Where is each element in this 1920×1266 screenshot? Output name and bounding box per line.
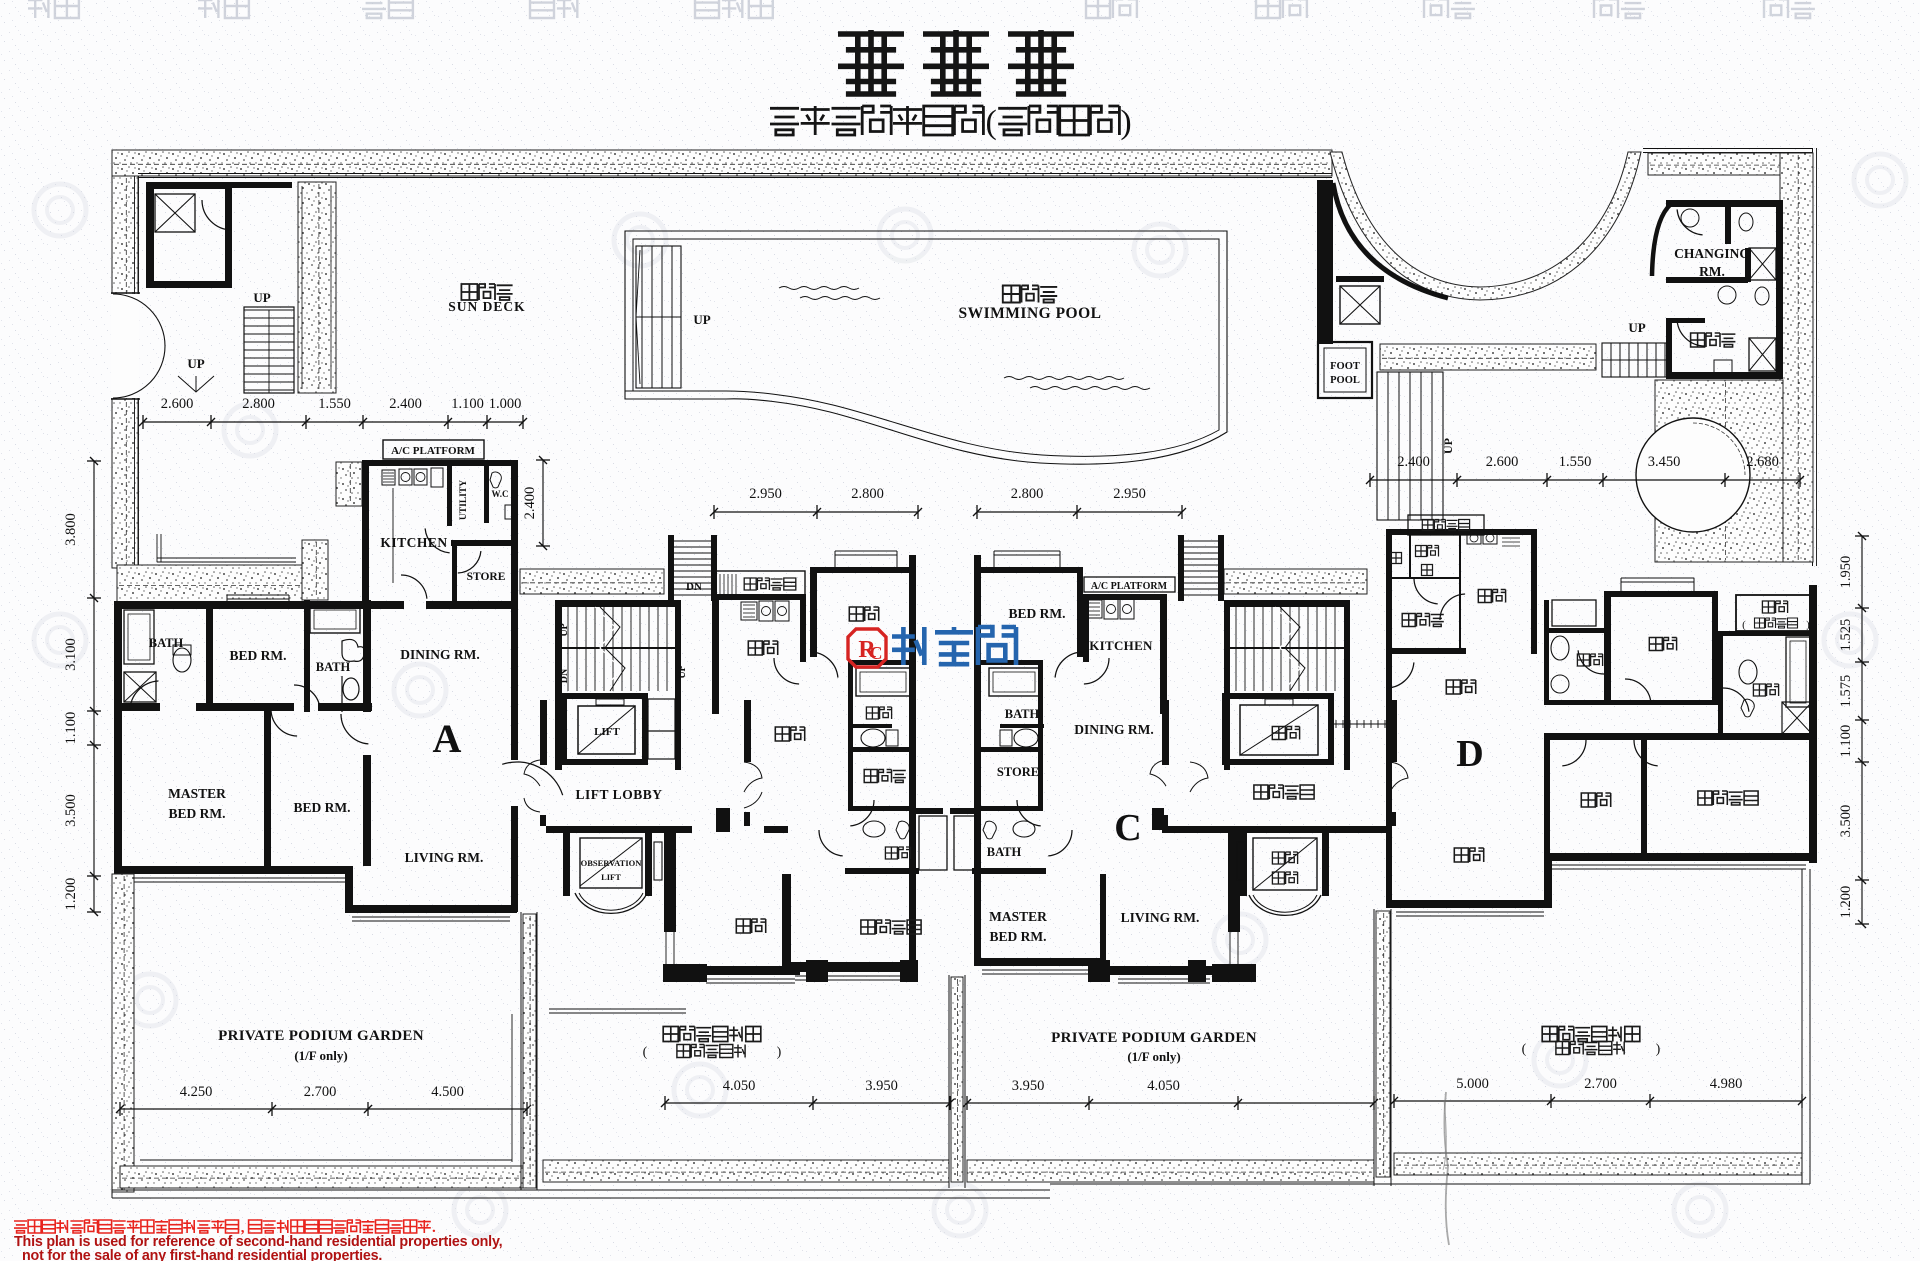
svg-text:3.500: 3.500 <box>1838 805 1854 838</box>
svg-text:A/C PLATFORM: A/C PLATFORM <box>1091 581 1168 592</box>
svg-text:UP: UP <box>1628 320 1645 335</box>
svg-text:OBSERVATION: OBSERVATION <box>581 858 643 868</box>
svg-text:RM.: RM. <box>1699 264 1725 279</box>
svg-text:4.500: 4.500 <box>431 1084 464 1100</box>
svg-text:4.050: 4.050 <box>1147 1078 1180 1094</box>
svg-text:A: A <box>433 716 462 761</box>
svg-text:2.680: 2.680 <box>1746 454 1779 470</box>
svg-text:C: C <box>870 643 883 663</box>
svg-text:LIFT: LIFT <box>594 726 620 738</box>
svg-text:2.600: 2.600 <box>1486 454 1519 470</box>
svg-text:A/C PLATFORM: A/C PLATFORM <box>391 445 475 457</box>
svg-text:BATH: BATH <box>149 636 184 650</box>
svg-text:(1/F only): (1/F only) <box>1127 1049 1180 1064</box>
svg-text:1.550: 1.550 <box>318 396 351 412</box>
svg-text:2.600: 2.600 <box>161 396 194 412</box>
svg-text:BED RM.: BED RM. <box>990 929 1047 944</box>
svg-text:3.950: 3.950 <box>1012 1078 1045 1094</box>
svg-text:(: ( <box>643 1045 648 1060</box>
svg-text:LIFT LOBBY: LIFT LOBBY <box>576 787 663 802</box>
svg-text:SUN DECK: SUN DECK <box>448 299 525 314</box>
svg-text:BATH: BATH <box>1005 707 1040 721</box>
svg-text:UP: UP <box>559 623 570 636</box>
svg-text:UTILITY: UTILITY <box>459 480 469 520</box>
svg-text:3.800: 3.800 <box>63 513 79 546</box>
svg-text:SWIMMING POOL: SWIMMING POOL <box>959 305 1102 322</box>
svg-text:DINING RM.: DINING RM. <box>1074 722 1154 737</box>
svg-text:BED RM.: BED RM. <box>294 800 351 815</box>
svg-text:UP: UP <box>187 356 204 371</box>
svg-text:1.100: 1.100 <box>451 396 484 412</box>
svg-text:2.950: 2.950 <box>1113 486 1146 502</box>
svg-text:1.000: 1.000 <box>489 396 522 412</box>
svg-text:FOOT: FOOT <box>1330 361 1360 372</box>
svg-text:1.200: 1.200 <box>63 878 79 911</box>
svg-text:DINING RM.: DINING RM. <box>400 647 480 662</box>
svg-text:2.400: 2.400 <box>389 396 422 412</box>
svg-text:DN: DN <box>559 668 570 683</box>
svg-text:(: ( <box>1742 619 1746 631</box>
svg-text:3.950: 3.950 <box>865 1078 898 1094</box>
svg-text:3.500: 3.500 <box>63 794 79 827</box>
svg-text:2.800: 2.800 <box>1011 486 1044 502</box>
svg-text:DN: DN <box>686 581 702 593</box>
svg-text:BED RM.: BED RM. <box>230 648 287 663</box>
svg-text:1.550: 1.550 <box>1559 454 1592 470</box>
svg-text:LIFT: LIFT <box>601 872 621 882</box>
svg-text:PRIVATE PODIUM GARDEN: PRIVATE PODIUM GARDEN <box>218 1028 424 1044</box>
svg-text:D: D <box>1456 733 1483 775</box>
svg-text:): ) <box>1656 1042 1661 1057</box>
svg-text:2.800: 2.800 <box>242 396 275 412</box>
svg-text:BATH: BATH <box>316 660 351 674</box>
svg-text:MASTER: MASTER <box>168 786 226 801</box>
svg-text:2.400: 2.400 <box>522 487 538 520</box>
svg-text:UP: UP <box>253 290 270 305</box>
svg-text:UP: UP <box>677 665 688 678</box>
svg-text:(: ( <box>986 104 997 141</box>
svg-text:5.000: 5.000 <box>1456 1076 1489 1092</box>
svg-text:2.800: 2.800 <box>851 486 884 502</box>
svg-text:1.525: 1.525 <box>1838 619 1854 652</box>
svg-text:4.250: 4.250 <box>180 1084 213 1100</box>
svg-text:KITCHEN: KITCHEN <box>1089 638 1153 653</box>
svg-text:BED RM.: BED RM. <box>1009 606 1066 621</box>
svg-text:1.200: 1.200 <box>1838 886 1854 919</box>
svg-text:C: C <box>1114 807 1141 849</box>
svg-text:UP: UP <box>693 312 710 327</box>
svg-text:POOL: POOL <box>1330 375 1360 386</box>
svg-text:UP: UP <box>1441 438 1455 454</box>
svg-text:): ) <box>1120 104 1131 141</box>
svg-text:BED RM.: BED RM. <box>169 806 226 821</box>
svg-text:1.575: 1.575 <box>1838 675 1854 708</box>
svg-text:not for the sale of any first-: not for the sale of any first-hand resid… <box>22 1248 382 1261</box>
svg-text:CHANGING: CHANGING <box>1674 246 1750 261</box>
svg-text:1.950: 1.950 <box>1838 556 1854 589</box>
svg-text:BATH: BATH <box>987 845 1022 859</box>
svg-text:W.C: W.C <box>492 489 509 499</box>
svg-text:KITCHEN: KITCHEN <box>380 535 447 550</box>
svg-text:PRIVATE PODIUM GARDEN: PRIVATE PODIUM GARDEN <box>1051 1030 1257 1046</box>
svg-text:LIVING RM.: LIVING RM. <box>1121 910 1200 925</box>
svg-text:(: ( <box>1522 1042 1527 1057</box>
svg-text:1.100: 1.100 <box>1838 725 1854 758</box>
svg-text:2.950: 2.950 <box>749 486 782 502</box>
svg-text:STORE: STORE <box>997 765 1039 779</box>
svg-text:LIVING RM.: LIVING RM. <box>405 850 484 865</box>
svg-text:3.450: 3.450 <box>1648 454 1681 470</box>
svg-text:(1/F only): (1/F only) <box>294 1048 347 1063</box>
svg-text:MASTER: MASTER <box>989 909 1047 924</box>
svg-text:1.100: 1.100 <box>63 712 79 745</box>
svg-text:): ) <box>777 1045 782 1060</box>
svg-text:4.980: 4.980 <box>1710 1076 1743 1092</box>
svg-text:3.100: 3.100 <box>63 638 79 671</box>
svg-text:2.400: 2.400 <box>1397 454 1430 470</box>
svg-text:STORE: STORE <box>467 571 506 583</box>
svg-text:4.050: 4.050 <box>723 1078 756 1094</box>
svg-text:2.700: 2.700 <box>1584 1076 1617 1092</box>
svg-text:2.700: 2.700 <box>304 1084 337 1100</box>
